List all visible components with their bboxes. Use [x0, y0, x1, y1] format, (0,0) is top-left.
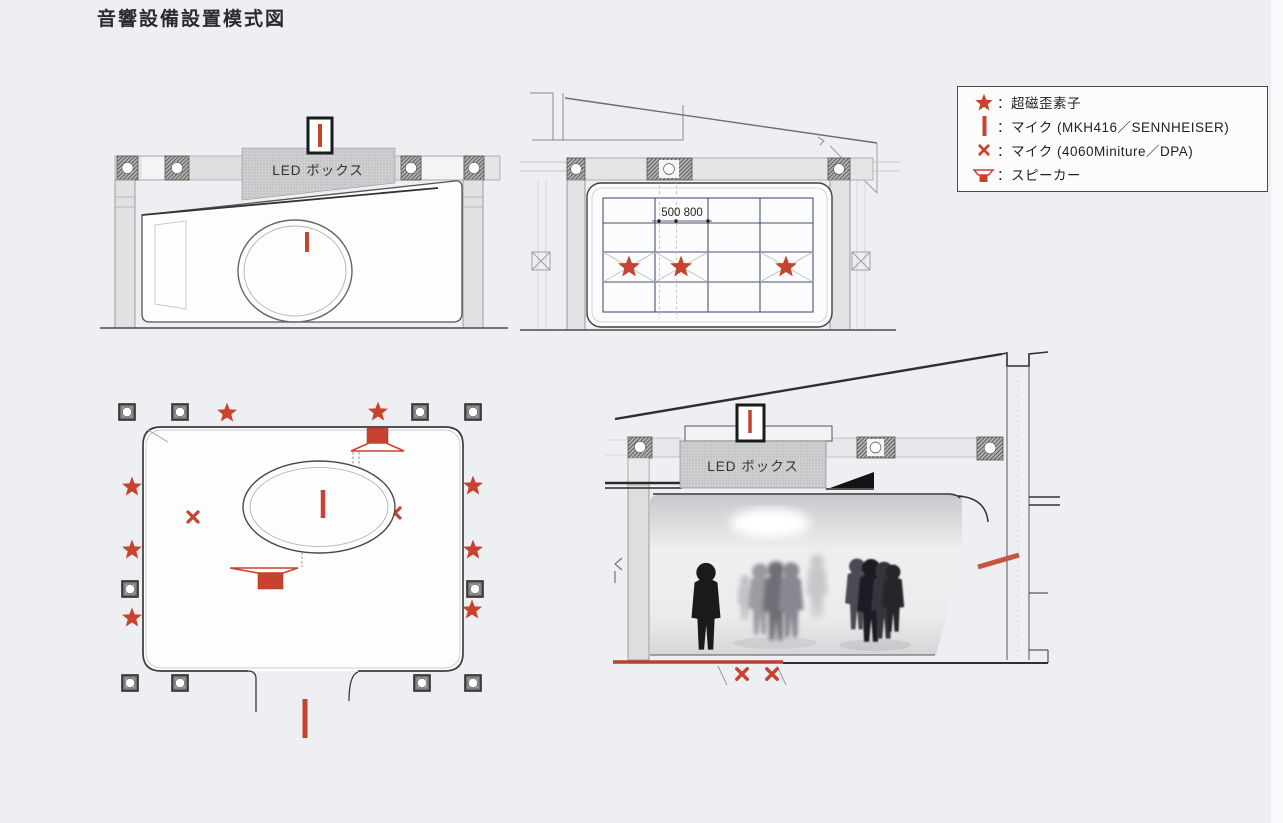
column-marker-icon: [467, 581, 483, 597]
oval-stage: [243, 461, 395, 553]
magnetostrictive-star-icon: [463, 476, 483, 495]
plan-view: [95, 392, 505, 752]
roof-profile: [615, 352, 1048, 419]
magnetostrictive-star-icon: [971, 91, 997, 113]
legend-label: ：マイク (MKH416／SENNHEISER): [997, 116, 1229, 136]
mic-x-icon: [971, 139, 997, 161]
speaker-icon: [971, 163, 997, 185]
column-marker-icon: [414, 675, 430, 691]
mic-x-icon: [767, 669, 778, 680]
column-left: [115, 180, 135, 328]
bearing-icon: [628, 437, 652, 458]
column-right: [830, 180, 850, 330]
section-view: LED ボックス: [605, 345, 1065, 690]
room-outline: [587, 183, 832, 327]
legend-item: ：マイク (4060Miniture／DPA): [958, 138, 1267, 162]
magnetostrictive-star-icon: [463, 540, 483, 559]
column-marker-icon: [172, 675, 188, 691]
legend-item: ：マイク (MKH416／SENNHEISER): [958, 114, 1267, 138]
magnetostrictive-star-icon: [217, 403, 237, 422]
column-marker-icon: [172, 404, 188, 420]
dimension-label: 500 800: [661, 207, 703, 219]
column-right: [463, 180, 483, 328]
column-marker-icon: [465, 404, 481, 420]
front-elevation-view: LED ボックス: [98, 85, 510, 335]
bearing-icon: [165, 156, 189, 180]
bearing-icon: [977, 437, 1003, 460]
oval-opening: [238, 220, 352, 322]
mic-mkh416-icon: [308, 118, 332, 153]
column-right: [1007, 366, 1060, 663]
speaker-icon: [978, 555, 1019, 567]
bearing-icon: [828, 158, 850, 180]
legend-item: ：超磁歪素子: [958, 90, 1267, 114]
ceiling-beam: [567, 158, 873, 180]
legend: ：超磁歪素子 ：マイク (MKH416／SENNHEISER) ：マイク (40…: [957, 86, 1268, 192]
legend-item: ：スピーカー: [958, 162, 1267, 186]
magnetostrictive-star-icon: [462, 600, 482, 619]
magnetostrictive-star-icon: [122, 477, 142, 496]
ceiling-light: [730, 508, 810, 538]
anchor-box-left: [532, 252, 550, 270]
bearing-icon: [567, 158, 585, 180]
mic-x-icon: [737, 669, 748, 680]
bearing-icon: [117, 156, 138, 180]
magnetostrictive-star-icon: [368, 402, 388, 421]
led-box-label: LED ボックス: [272, 163, 364, 178]
column-marker-icon: [122, 581, 138, 597]
column-left: [567, 180, 585, 330]
schematic-page: 音響設備設置模式図 ：超磁歪素子 ：マイク (MKH416／SENNHEISER…: [0, 0, 1283, 823]
legend-label: ：スピーカー: [997, 164, 1081, 184]
magnetostrictive-star-icon: [122, 608, 142, 627]
magnetostrictive-star-icon: [122, 540, 142, 559]
page-edge: [1271, 0, 1283, 823]
anchor-box-right: [852, 252, 870, 270]
room-photo: [650, 494, 988, 655]
mic-mkh416-icon: [737, 405, 764, 441]
page-title: 音響設備設置模式図: [97, 4, 286, 31]
bearing-icon: [401, 156, 421, 180]
bearing-icon: [464, 156, 484, 180]
column-marker-icon: [412, 404, 428, 420]
section-cut-icon: [615, 558, 622, 583]
rear-elevation-view: 500 800: [520, 83, 900, 335]
led-box: LED ボックス: [680, 441, 826, 488]
bearing-icon: [647, 158, 692, 180]
column-marker-icon: [122, 675, 138, 691]
led-box-label: LED ボックス: [707, 459, 799, 474]
legend-label: ：マイク (4060Miniture／DPA): [997, 140, 1193, 160]
mic-line-icon: [971, 115, 997, 137]
bearing-icon: [857, 437, 895, 458]
column-marker-icon: [465, 675, 481, 691]
legend-label: ：超磁歪素子: [997, 92, 1081, 112]
wedge-shape: [830, 472, 874, 488]
column-marker-icon: [119, 404, 135, 420]
